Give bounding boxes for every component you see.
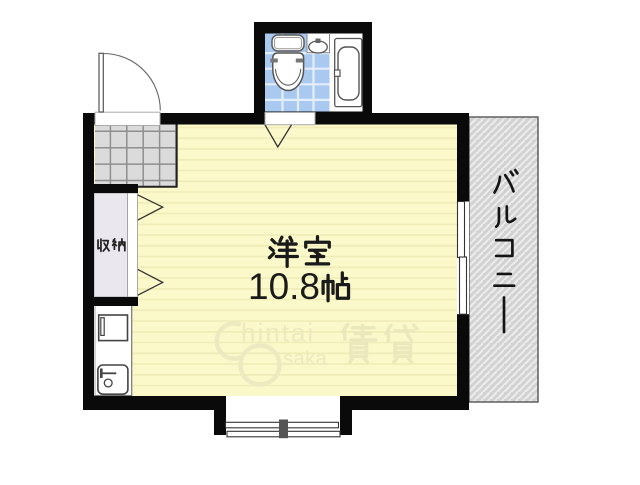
svg-text:hintai: hintai — [241, 318, 315, 348]
svg-text:10.8: 10.8 — [248, 266, 320, 307]
svg-text:saka: saka — [283, 348, 328, 370]
